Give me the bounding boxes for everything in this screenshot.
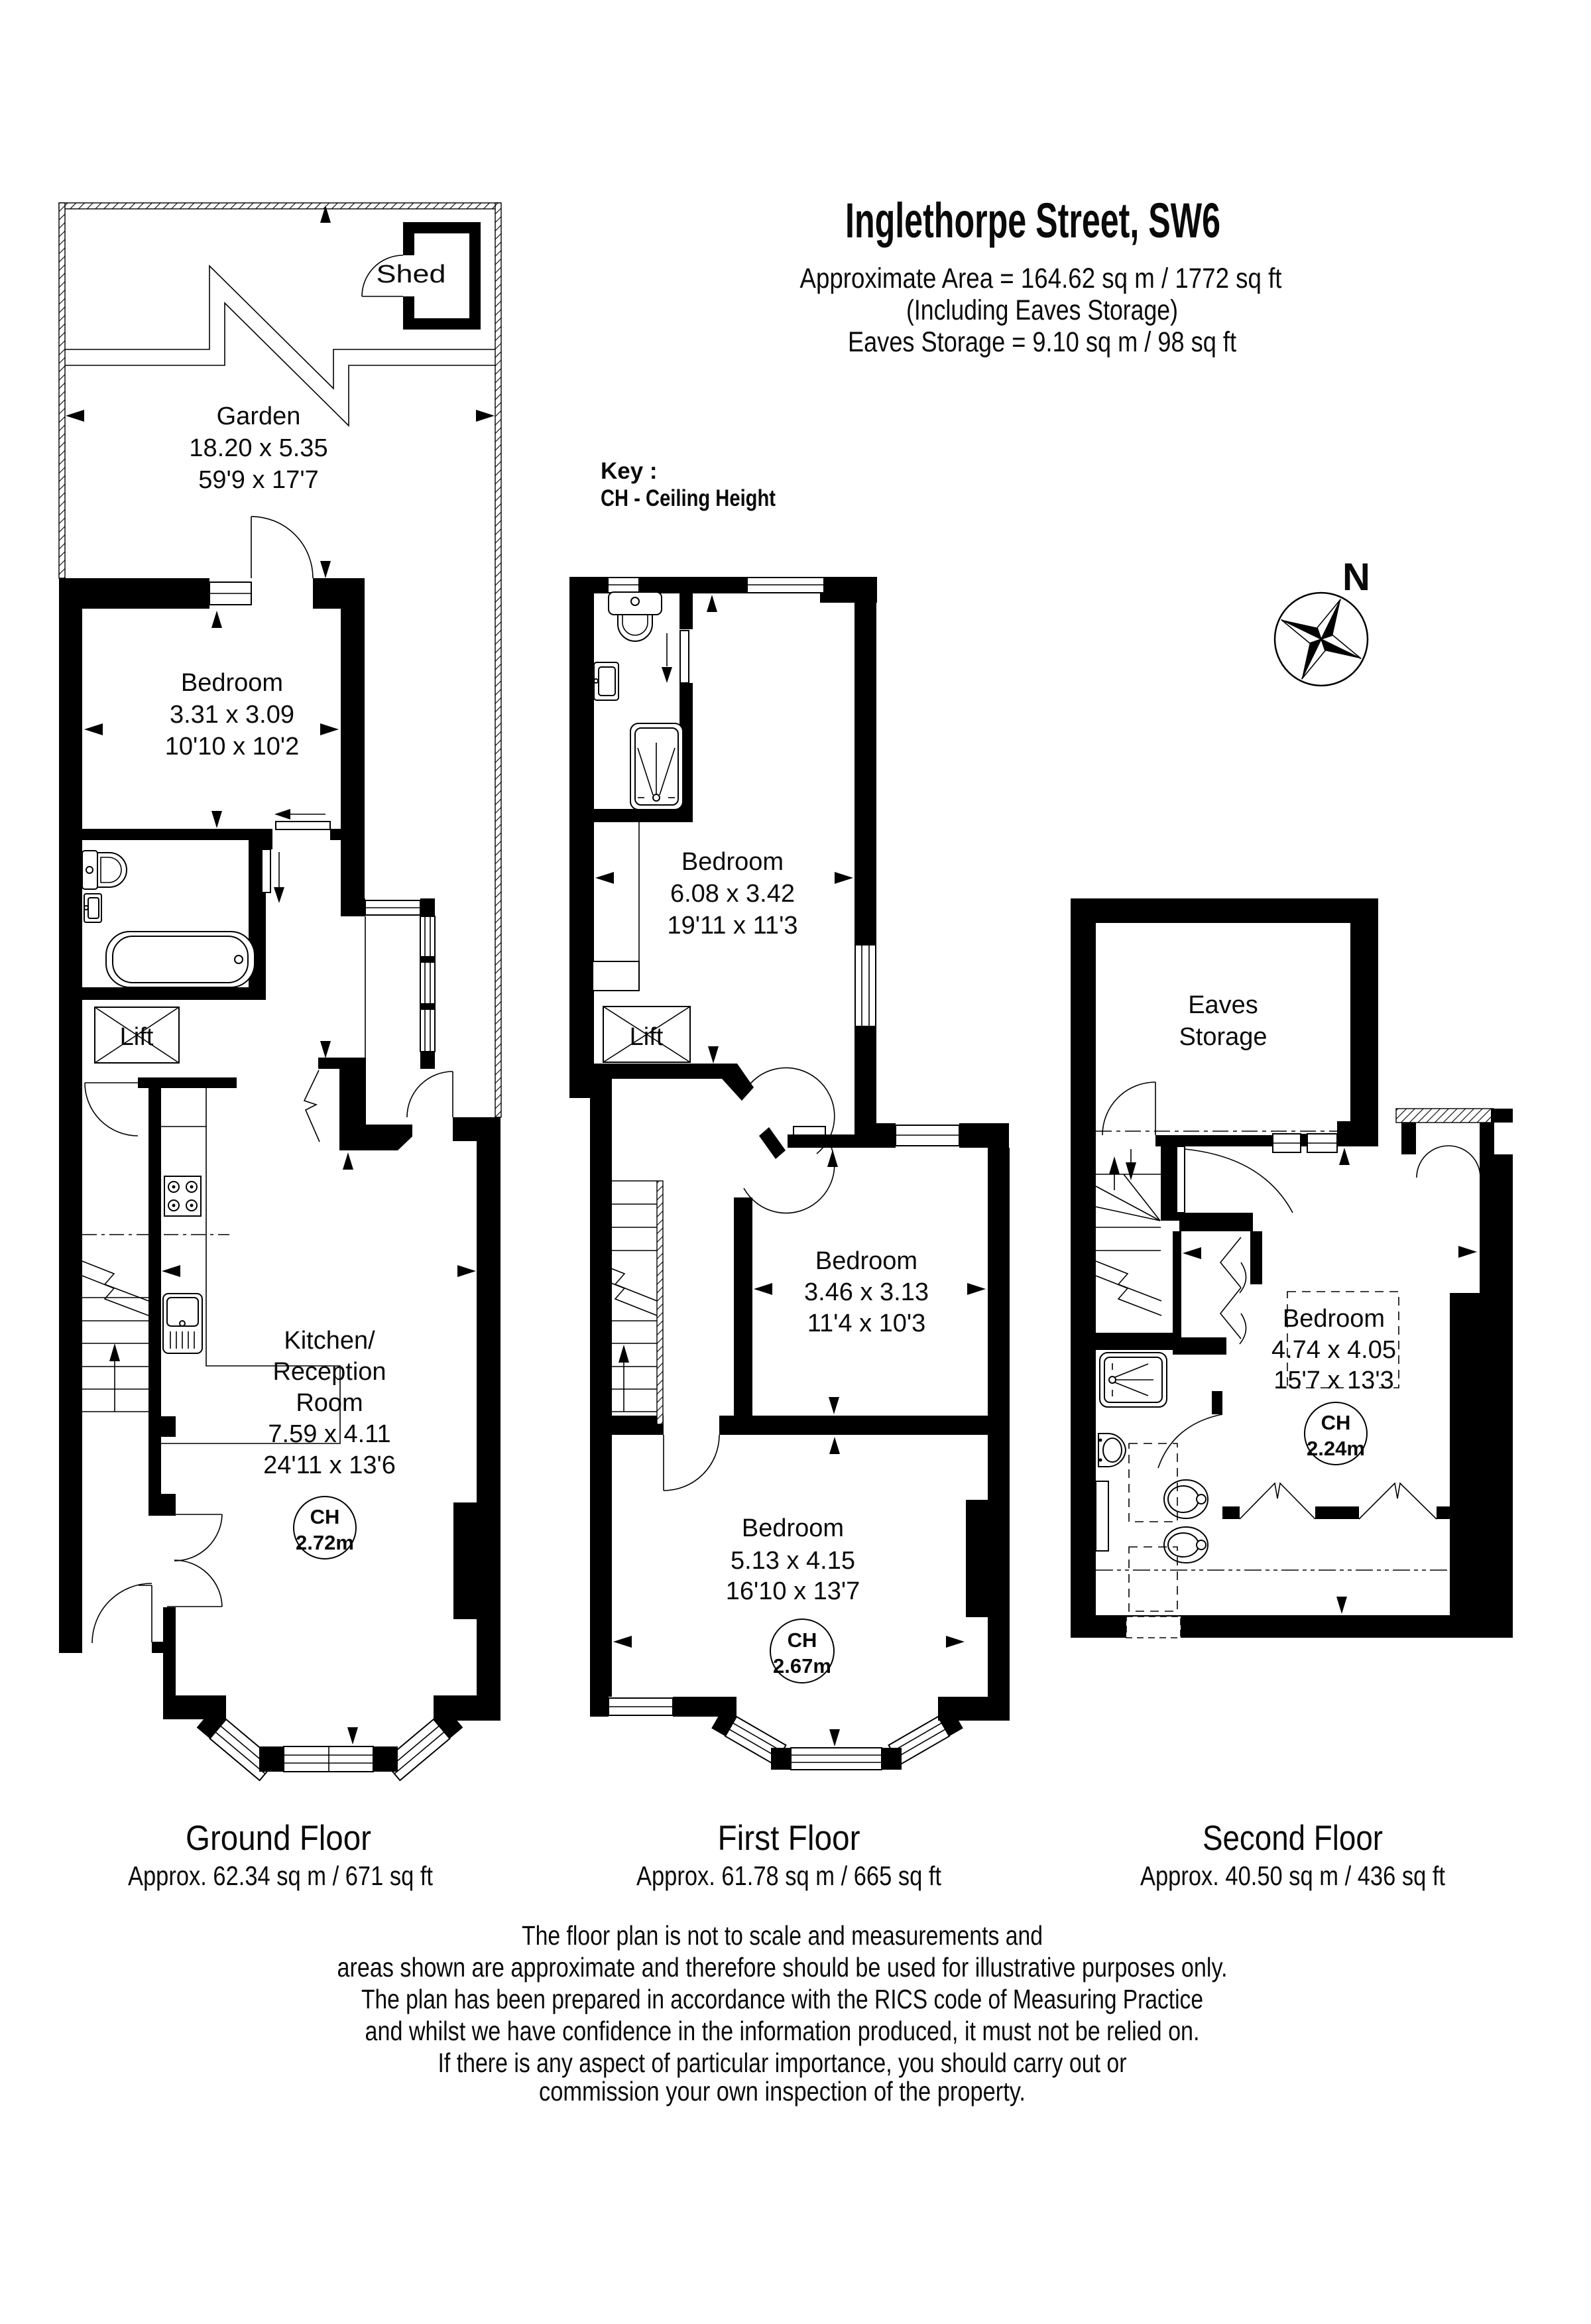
svg-text:Bedroom: Bedroom <box>181 669 283 697</box>
svg-text:Inglethorpe Street, SW6: Inglethorpe Street, SW6 <box>845 193 1220 248</box>
svg-text:16'10 x 13'7: 16'10 x 13'7 <box>726 1577 860 1605</box>
svg-text:2.67m: 2.67m <box>773 1654 831 1678</box>
svg-text:commission your own inspection: commission your own inspection of the pr… <box>539 2076 1026 2107</box>
svg-text:5.13 x 4.15: 5.13 x 4.15 <box>731 1547 855 1575</box>
svg-text:Approx. 62.34 sq m / 671 sq ft: Approx. 62.34 sq m / 671 sq ft <box>128 1861 434 1891</box>
svg-text:18.20 x 5.35: 18.20 x 5.35 <box>189 434 327 462</box>
svg-text:The floor plan is not to scale: The floor plan is not to scale and measu… <box>522 1920 1043 1951</box>
svg-text:Second Floor: Second Floor <box>1203 1819 1383 1858</box>
svg-text:Bedroom: Bedroom <box>1283 1305 1385 1333</box>
svg-text:11'4 x 10'3: 11'4 x 10'3 <box>807 1310 926 1337</box>
svg-text:The plan has been prepared in: The plan has been prepared in accordance… <box>361 1984 1203 2014</box>
svg-text:First Floor: First Floor <box>718 1819 860 1858</box>
svg-text:Approx. 40.50 sq m / 436 sq ft: Approx. 40.50 sq m / 436 sq ft <box>1140 1861 1446 1891</box>
svg-text:2.24m: 2.24m <box>1307 1437 1365 1460</box>
svg-text:Approximate Area = 164.62 sq: Approximate Area = 164.62 sq m / 1772 sq… <box>800 263 1282 294</box>
svg-text:4.74 x 4.05: 4.74 x 4.05 <box>1271 1336 1396 1364</box>
svg-text:19'11 x 11'3: 19'11 x 11'3 <box>668 912 798 940</box>
svg-text:Bedroom: Bedroom <box>681 848 784 876</box>
svg-text:Bedroom: Bedroom <box>742 1514 844 1542</box>
svg-text:2.72m: 2.72m <box>296 1531 354 1554</box>
svg-text:3.46 x 3.13: 3.46 x 3.13 <box>804 1278 929 1306</box>
svg-text:Garden: Garden <box>217 402 301 430</box>
svg-text:CH: CH <box>1321 1411 1351 1434</box>
svg-text:CH: CH <box>788 1628 817 1652</box>
svg-text:Ground Floor: Ground Floor <box>186 1819 371 1858</box>
svg-text:Eaves: Eaves <box>1188 991 1258 1019</box>
svg-text:and whilst we have confidence: and whilst we have confidence in the inf… <box>365 2016 1200 2046</box>
svg-text:Reception: Reception <box>272 1358 386 1386</box>
svg-text:areas shown are approximate an: areas shown are approximate and therefor… <box>337 1952 1228 1983</box>
svg-text:Eaves Storage = 9.10 sq m / 9: Eaves Storage = 9.10 sq m / 98 sq ft <box>848 326 1236 358</box>
svg-text:(Including Eaves Storage): (Including Eaves Storage) <box>906 294 1178 326</box>
svg-text:Approx. 61.78 sq m / 665 sq ft: Approx. 61.78 sq m / 665 sq ft <box>636 1861 942 1891</box>
svg-text:6.08 x 3.42: 6.08 x 3.42 <box>670 880 795 908</box>
svg-text:CH - Ceiling Height: CH - Ceiling Height <box>601 485 776 511</box>
svg-text:10'10 x 10'2: 10'10 x 10'2 <box>165 733 300 761</box>
svg-text:3.31 x 3.09: 3.31 x 3.09 <box>170 701 294 729</box>
svg-text:7.59 x 4.11: 7.59 x 4.11 <box>268 1420 390 1448</box>
svg-text:Storage: Storage <box>1179 1023 1267 1051</box>
svg-text:24'11 x 13'6: 24'11 x 13'6 <box>263 1451 396 1479</box>
svg-text:If there is any aspect of part: If there is any aspect of particular imp… <box>438 2048 1127 2078</box>
svg-text:Room: Room <box>296 1389 363 1417</box>
svg-text:N: N <box>1342 556 1370 599</box>
svg-text:Lift: Lift <box>630 1023 664 1051</box>
svg-text:Key :: Key : <box>601 458 658 484</box>
svg-text:Shed: Shed <box>377 261 446 288</box>
svg-text:Bedroom: Bedroom <box>815 1247 917 1275</box>
svg-text:15'7 x 13'3: 15'7 x 13'3 <box>1273 1367 1393 1394</box>
svg-text:Kitchen/: Kitchen/ <box>284 1327 375 1355</box>
svg-text:Lift: Lift <box>120 1023 154 1051</box>
svg-text:59'9 x 17'7: 59'9 x 17'7 <box>198 466 318 494</box>
svg-text:CH: CH <box>310 1505 340 1528</box>
